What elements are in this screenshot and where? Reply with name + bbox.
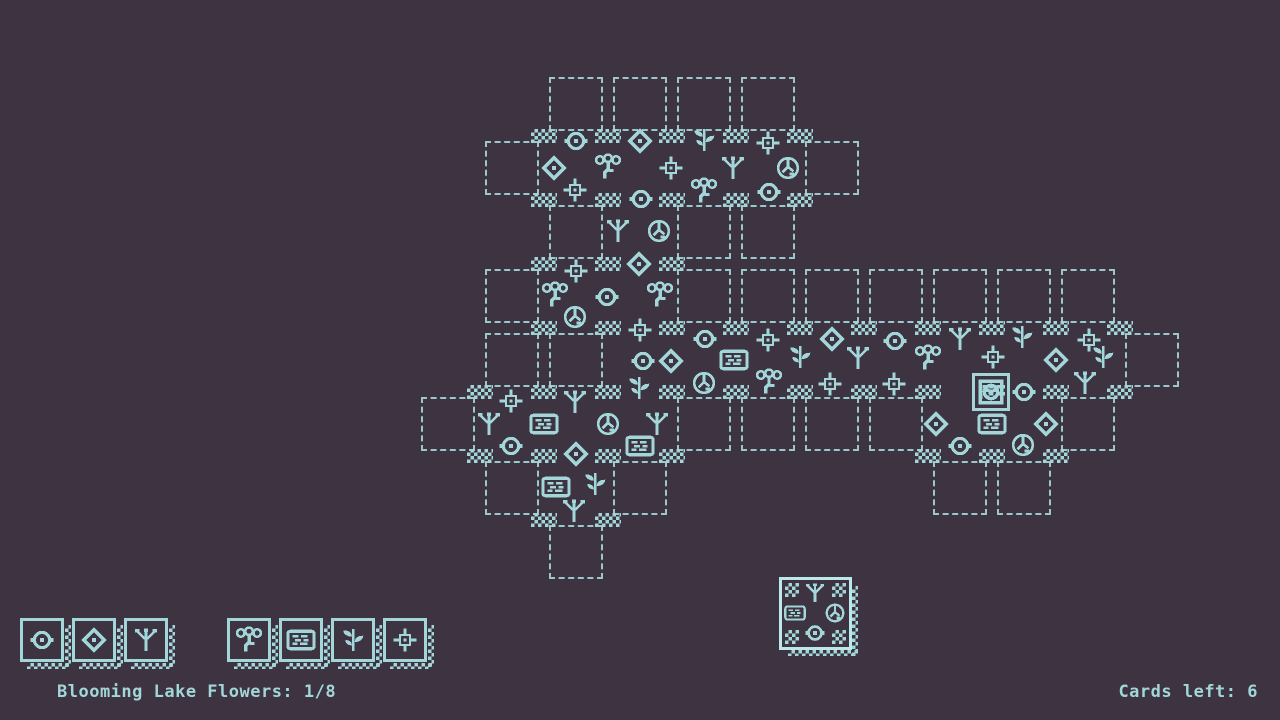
button-shadow [286, 663, 328, 669]
rock-framed-icon [971, 372, 1011, 412]
sprout-icon [947, 326, 973, 352]
empty-slot[interactable] [1061, 397, 1115, 451]
card-border-checker [467, 385, 493, 399]
sprout-icon [845, 345, 871, 371]
flower-cluster-icon [755, 368, 783, 396]
sprout-icon [562, 389, 588, 415]
card-shadow [852, 586, 858, 656]
button-shadow [272, 625, 278, 667]
empty-slot[interactable] [869, 397, 923, 451]
rock-icon [562, 304, 588, 330]
circle-ring-icon [630, 348, 656, 374]
rock-icon [595, 411, 621, 437]
empty-slot[interactable] [933, 269, 987, 323]
card-border-checker [787, 193, 813, 207]
card-border-checker [787, 129, 813, 143]
lake-icon [977, 409, 1007, 439]
button-shadow [390, 663, 432, 669]
flower-cluster-icon [914, 344, 942, 372]
card-border-checker [595, 257, 621, 271]
card-border-checker [1043, 385, 1069, 399]
diamond-icon [81, 627, 107, 653]
card-border-checker [915, 449, 941, 463]
card-border-checker [531, 193, 557, 207]
empty-slot[interactable] [741, 77, 795, 131]
card-corner-checker [832, 630, 846, 644]
card-corner-checker [785, 583, 799, 597]
empty-slot[interactable] [1125, 333, 1179, 387]
card-corner-checker [832, 583, 846, 597]
card-border-checker [531, 385, 557, 399]
lake-icon [625, 431, 655, 461]
empty-slot[interactable] [677, 205, 731, 259]
button-shadow [234, 663, 276, 669]
flower-cross-icon [755, 327, 781, 353]
lake-icon [784, 602, 806, 624]
circle-ring-icon [882, 328, 908, 354]
card-button-flower-cross[interactable] [383, 618, 427, 662]
empty-slot[interactable] [741, 269, 795, 323]
empty-slot[interactable] [485, 461, 539, 515]
button-shadow [428, 625, 434, 667]
card-button-leaf-plant[interactable] [331, 618, 375, 662]
flower-cross-icon [755, 130, 781, 156]
card-border-checker [659, 193, 685, 207]
rock-icon [691, 370, 717, 396]
card-border-checker [659, 385, 685, 399]
game-screen: Blooming Lake Flowers: 1/8 Cards left: 6 [0, 0, 1280, 720]
empty-slot[interactable] [421, 397, 475, 451]
flower-cluster-icon [235, 626, 263, 654]
card-border-checker [915, 321, 941, 335]
card-border-checker [531, 257, 557, 271]
circle-ring-icon [498, 433, 524, 459]
empty-slot[interactable] [549, 205, 603, 259]
card-shadow [788, 650, 858, 656]
card-border-checker [531, 129, 557, 143]
sprout-icon [605, 218, 631, 244]
button-shadow [338, 663, 380, 669]
card-border-checker [979, 449, 1005, 463]
empty-slot[interactable] [677, 397, 731, 451]
empty-slot[interactable] [933, 461, 987, 515]
card-border-checker [531, 449, 557, 463]
flower-cluster-icon [690, 177, 718, 205]
card-border-checker [1043, 321, 1069, 335]
empty-slot[interactable] [805, 397, 859, 451]
card-button-diamond[interactable] [72, 618, 116, 662]
button-shadow [324, 625, 330, 667]
selected-card-preview[interactable] [779, 577, 852, 650]
button-shadow [131, 663, 173, 669]
card-border-checker [723, 385, 749, 399]
card-border-checker [531, 513, 557, 527]
card-button-sprout[interactable] [124, 618, 168, 662]
empty-slot[interactable] [549, 77, 603, 131]
circle-ring-icon [947, 433, 973, 459]
diamond-icon [923, 411, 949, 437]
circle-ring-icon [563, 128, 589, 154]
card-border-checker [531, 321, 557, 335]
card-border-checker [851, 385, 877, 399]
button-shadow [27, 663, 69, 669]
card-border-checker [915, 385, 941, 399]
flower-cluster-icon [646, 281, 674, 309]
diamond-icon [819, 326, 845, 352]
leaf-plant-icon [691, 127, 717, 153]
circle-ring-icon [594, 284, 620, 310]
flower-cross-icon [392, 627, 418, 653]
card-button-circle-ring[interactable] [20, 618, 64, 662]
leaf-plant-icon [582, 471, 608, 497]
leaf-plant-icon [787, 344, 813, 370]
card-border-checker [595, 385, 621, 399]
circle-ring-icon [756, 179, 782, 205]
diamond-icon [658, 348, 684, 374]
flower-cluster-icon [594, 153, 622, 181]
empty-slot[interactable] [997, 269, 1051, 323]
sprout-icon [804, 582, 826, 604]
circle-ring-icon [692, 326, 718, 352]
diamond-icon [1033, 411, 1059, 437]
rock-icon [1010, 432, 1036, 458]
circle-ring-icon [804, 622, 826, 644]
sprout-icon [1072, 370, 1098, 396]
button-shadow [117, 625, 123, 667]
leaf-plant-icon [1090, 344, 1116, 370]
flower-cross-icon [881, 371, 907, 397]
empty-slot[interactable] [805, 269, 859, 323]
card-border-checker [851, 321, 877, 335]
empty-slot[interactable] [677, 77, 731, 131]
empty-slot[interactable] [805, 141, 859, 195]
diamond-icon [1043, 347, 1069, 373]
cards-left-text: Cards left: 6 [1118, 682, 1258, 702]
card-border-checker [467, 449, 493, 463]
card-border-checker [659, 449, 685, 463]
flower-cross-icon [817, 371, 843, 397]
objective-text: Blooming Lake Flowers: 1/8 [57, 682, 336, 702]
card-border-checker [595, 193, 621, 207]
flower-cross-icon [658, 155, 684, 181]
card-border-checker [1043, 449, 1069, 463]
sprout-icon [133, 627, 159, 653]
empty-slot[interactable] [869, 269, 923, 323]
diamond-icon [627, 128, 653, 154]
circle-ring-icon [1011, 379, 1037, 405]
empty-slot[interactable] [549, 333, 603, 387]
diamond-icon [626, 251, 652, 277]
button-shadow [65, 625, 71, 667]
circle-ring-icon [29, 627, 55, 653]
circle-ring-icon [628, 186, 654, 212]
card-border-checker [595, 321, 621, 335]
card-border-checker [723, 193, 749, 207]
card-border-checker [787, 385, 813, 399]
empty-slot[interactable] [485, 269, 539, 323]
card-corner-checker [785, 630, 799, 644]
card-button-flower-cluster[interactable] [227, 618, 271, 662]
card-border-checker [1107, 385, 1133, 399]
lake-icon [719, 345, 749, 375]
card-border-checker [595, 129, 621, 143]
card-border-checker [595, 449, 621, 463]
flower-cross-icon [980, 344, 1006, 370]
empty-slot[interactable] [741, 397, 795, 451]
empty-slot[interactable] [741, 205, 795, 259]
sprout-icon [561, 498, 587, 524]
card-border-checker [595, 513, 621, 527]
empty-slot[interactable] [549, 525, 603, 579]
card-border-checker [659, 257, 685, 271]
lake-icon [286, 625, 316, 655]
card-border-checker [787, 321, 813, 335]
leaf-plant-icon [626, 375, 652, 401]
diamond-icon [563, 441, 589, 467]
card-border-checker [723, 321, 749, 335]
flower-cross-icon [562, 177, 588, 203]
empty-slot[interactable] [613, 461, 667, 515]
empty-slot[interactable] [1061, 269, 1115, 323]
rock-icon [646, 218, 672, 244]
card-border-checker [979, 321, 1005, 335]
empty-slot[interactable] [485, 141, 539, 195]
empty-slot[interactable] [485, 333, 539, 387]
card-border-checker [659, 129, 685, 143]
card-border-checker [723, 129, 749, 143]
card-button-lake[interactable] [279, 618, 323, 662]
lake-icon [529, 409, 559, 439]
button-shadow [169, 625, 175, 667]
button-shadow [79, 663, 121, 669]
leaf-plant-icon [340, 627, 366, 653]
card-border-checker [659, 321, 685, 335]
button-shadow [376, 625, 382, 667]
empty-slot[interactable] [613, 77, 667, 131]
flower-cross-icon [627, 317, 653, 343]
empty-slot[interactable] [997, 461, 1051, 515]
rock-icon [775, 155, 801, 181]
leaf-plant-icon [1009, 324, 1035, 350]
sprout-icon [720, 155, 746, 181]
rock-icon [824, 602, 846, 624]
card-border-checker [1107, 321, 1133, 335]
empty-slot[interactable] [677, 269, 731, 323]
